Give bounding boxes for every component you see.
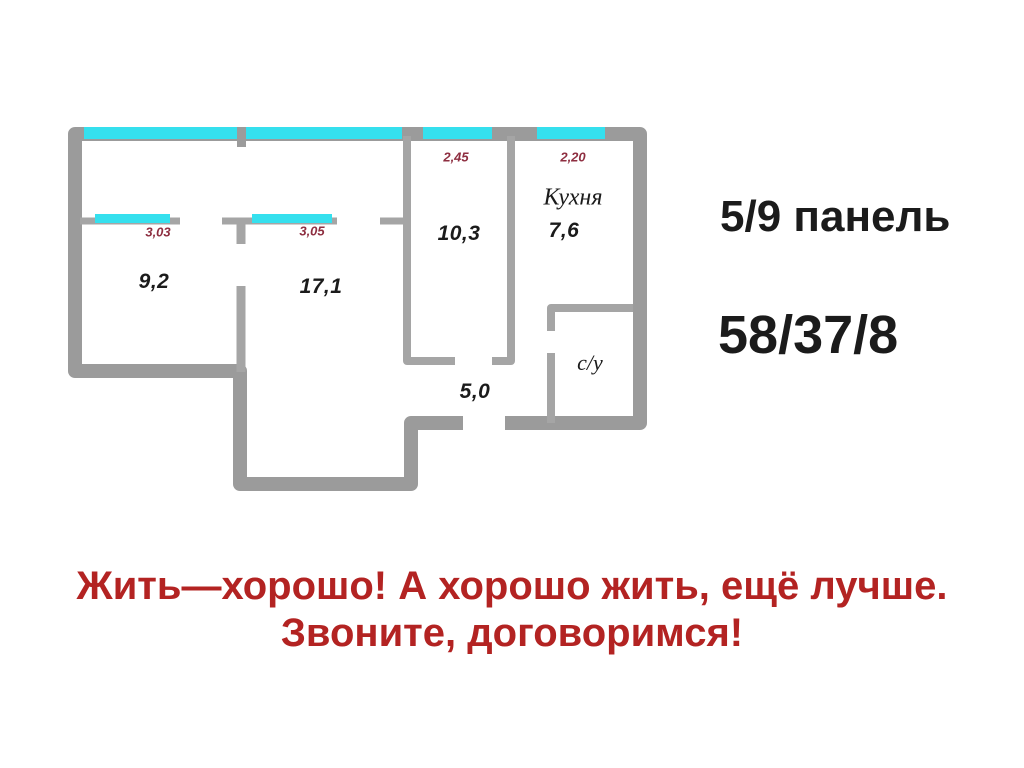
window-room1-inner	[95, 214, 170, 223]
slogan-line-1: Жить—хорошо! А хорошо жить, ещё лучше.	[0, 563, 1024, 610]
hall-area-label: 5,0	[460, 380, 491, 404]
dimension-kitchen-width: 2,20	[560, 150, 585, 165]
building-type-label: 5/9 панель	[720, 192, 950, 242]
window-room1-top	[84, 127, 237, 139]
slogan-line-2: Звоните, договоримся!	[0, 610, 1024, 657]
area-summary-label: 58/37/8	[718, 304, 898, 366]
room3-area-label: 10,3	[438, 222, 481, 246]
kitchen-area-label: 7,6	[549, 219, 580, 243]
window-room2-inner	[252, 214, 332, 223]
room1-area-label: 9,2	[139, 270, 170, 294]
window-room2-top	[246, 127, 402, 139]
windows	[84, 127, 605, 223]
window-kitchen-top	[537, 127, 605, 139]
dimension-room2-width: 3,05	[299, 224, 324, 239]
wall-bathroom-top	[551, 308, 633, 331]
dimension-room1-width: 3,03	[145, 225, 170, 240]
room2-area-label: 17,1	[300, 275, 343, 299]
slogan: Жить—хорошо! А хорошо жить, ещё лучше. З…	[0, 563, 1024, 657]
advert-page: 3,03 3,05 2,45 2,20 9,2 17,1 10,3 Кухня …	[0, 0, 1024, 768]
wall-pier	[237, 140, 246, 147]
window-room3-top	[423, 127, 492, 139]
wall-room3-kitchen	[492, 136, 511, 361]
dimension-room3-width: 2,45	[443, 150, 468, 165]
wall-room2-room3	[407, 136, 455, 361]
bathroom-name-label: с/у	[577, 350, 603, 376]
kitchen-name-label: Кухня	[544, 185, 603, 212]
